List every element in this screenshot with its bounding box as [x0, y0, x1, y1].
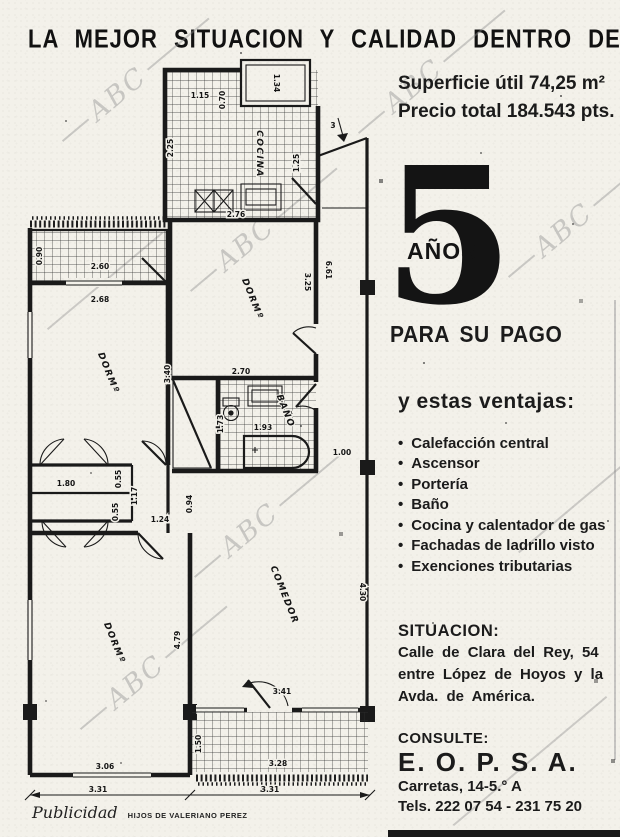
agency-name: HIJOS DE VALERIANO PEREZ — [128, 811, 248, 820]
dim-label: 3.41 — [273, 687, 292, 696]
consulte-block: CONSULTE: E. O. P. S. A. Carretas, 14-5.… — [398, 730, 582, 817]
entry-door — [318, 138, 367, 156]
window — [66, 278, 122, 287]
list-item-text: Calefacción central — [411, 435, 549, 452]
dim-label: 0.70 — [218, 91, 227, 110]
print-specks — [0, 0, 2, 2]
five-years-block: 5 AÑOS — [383, 152, 533, 332]
dim-label: 0.94 — [185, 495, 194, 514]
company-phones: Tels. 222 07 54 - 231 75 20 — [398, 797, 582, 817]
list-item-text: Ascensor — [411, 455, 479, 472]
list-item: Portería — [398, 474, 606, 495]
dim-label: 3.31 — [89, 785, 108, 794]
dim-label: 1.00 — [333, 448, 352, 457]
consulte-title: CONSULTE: — [398, 730, 582, 747]
big-five-digit: 5 — [383, 126, 514, 347]
bathroom: 1.73 1.93 BAÑO — [172, 378, 318, 472]
dim-label: 1.25 — [292, 154, 301, 173]
precio-line: Precio total 184.543 pts. — [398, 98, 615, 126]
ventajas-title: y estas ventajas: — [398, 390, 575, 414]
terrace-tiles — [30, 230, 168, 282]
dimension-line: 3.31 3.31 — [25, 785, 375, 800]
dim-label: 6.61 — [324, 261, 333, 280]
offer-lines: Superficie útil 74,25 m² Precio total 18… — [398, 70, 615, 126]
bedroom-left: DORMº 3.40 — [95, 283, 172, 465]
list-item: Exenciones tributarias — [398, 556, 606, 577]
situacion-title: SITUACION: — [398, 620, 603, 642]
dim-label: 4.79 — [173, 631, 182, 650]
dim-label: 1.73 — [216, 415, 225, 434]
pillar — [23, 704, 37, 720]
list-item: Baño — [398, 495, 606, 516]
ventajas-list: Calefacción central Ascensor Portería Ba… — [398, 433, 606, 577]
dim-label: 0.55 — [111, 503, 120, 522]
window — [73, 770, 151, 779]
superficie-line: Superficie útil 74,25 m² — [398, 70, 615, 98]
room-label-dorm: DORMº — [239, 277, 265, 321]
dim-label: 0.90 — [35, 247, 44, 266]
publicidad-script: Publicidad — [32, 803, 118, 822]
dim-label: 3 — [330, 121, 335, 130]
abc-watermark-text: ABC — [528, 197, 599, 263]
door-leaf — [293, 333, 316, 354]
list-item-text: Exenciones tributarias — [411, 558, 572, 575]
dim-label: 1.15 — [191, 91, 210, 100]
dim-label: 4.30 — [358, 583, 367, 602]
room-label-comedor: COMEDOR — [268, 565, 300, 626]
list-item-text: Baño — [411, 496, 449, 513]
dim-label: 3.25 — [303, 273, 312, 292]
bedroom-middle: 2.76 3.25 2.70 DORMº — [170, 210, 318, 378]
dim-label: 3.40 — [163, 365, 172, 384]
dim-label: 0.55 — [114, 470, 123, 489]
pillar — [360, 280, 375, 295]
dim-label: 3.31 — [261, 785, 280, 794]
newspaper-ad: LA MEJOR SITUACION Y CALIDAD DENTRO DE S… — [0, 0, 620, 837]
dim-label: 2.70 — [232, 367, 251, 376]
dim-label: 2.60 — [91, 262, 110, 271]
terrace-bottom: 1.50 3.28 — [192, 712, 368, 784]
left-wall — [23, 228, 37, 775]
situacion-line: entre López de Hoyos y la — [398, 664, 603, 686]
situacion-line: Avda. de América. — [398, 686, 603, 708]
terrace-left: 0.90 2.60 2.68 — [30, 218, 168, 304]
dim-label: 3.28 — [269, 759, 288, 768]
room-label-dorm: DORMº — [95, 351, 121, 395]
list-item-text: Portería — [411, 476, 468, 493]
dim-label: 1.93 — [254, 423, 273, 432]
situacion-line: Calle de Clara del Rey, 54 — [398, 642, 603, 664]
company-name: E. O. P. S. A. — [398, 747, 582, 777]
list-item-text: Cocina y calentador de gas — [411, 517, 605, 534]
column-rule — [614, 300, 616, 760]
kitchen: 1.15 0.70 1.34 2.25 1.25 COCINA — [165, 60, 318, 220]
dim-label: 1.80 — [57, 479, 76, 488]
list-item: Ascensor — [398, 454, 606, 475]
closet-doors — [40, 439, 108, 465]
window — [26, 600, 35, 660]
bottom-rule — [388, 830, 620, 837]
anos-label: AÑOS — [407, 238, 477, 265]
company-address: Carretas, 14-5.° A — [398, 777, 582, 797]
dim-label: 2.76 — [227, 210, 246, 219]
dim-label: 1.34 — [272, 74, 281, 93]
room-label-cocina: COCINA — [254, 130, 264, 178]
list-item: Fachadas de ladrillo visto — [398, 536, 606, 557]
dim-label: 1.50 — [194, 735, 203, 754]
dim-label: 1.17 — [130, 487, 139, 506]
para-su-pago: PARA SU PAGO — [390, 322, 562, 349]
pillar — [360, 460, 375, 475]
terrace-door-leaf — [248, 680, 270, 708]
headline: LA MEJOR SITUACION Y CALIDAD DENTRO DE S… — [28, 24, 603, 55]
dim-label: 1.24 — [151, 515, 170, 524]
room-label-dorm: DORMº — [101, 621, 127, 665]
dim-label: 3.06 — [96, 762, 115, 771]
comedor: COMEDOR 4.30 3.41 — [190, 565, 370, 715]
list-item: Cocina y calentador de gas — [398, 515, 606, 536]
entry-and-right-wall: 3 6.61 1.00 — [318, 118, 375, 722]
dim-label: 2.25 — [166, 139, 175, 158]
light-shaft — [173, 380, 211, 468]
agency-signature: Publicidad HIJOS DE VALERIANO PEREZ — [32, 803, 247, 822]
list-item-text: Fachadas de ladrillo visto — [411, 537, 594, 554]
bedroom-bottom: DORMº 4.79 3.06 — [30, 533, 197, 779]
window — [26, 312, 35, 358]
situacion-block: SITUACION: Calle de Clara del Rey, 54 en… — [398, 620, 603, 708]
dim-label: 2.68 — [91, 295, 110, 304]
list-item: Calefacción central — [398, 433, 606, 454]
floor-plan: 1.15 0.70 1.34 2.25 1.25 COCINA 3 6.61 1… — [20, 56, 395, 803]
